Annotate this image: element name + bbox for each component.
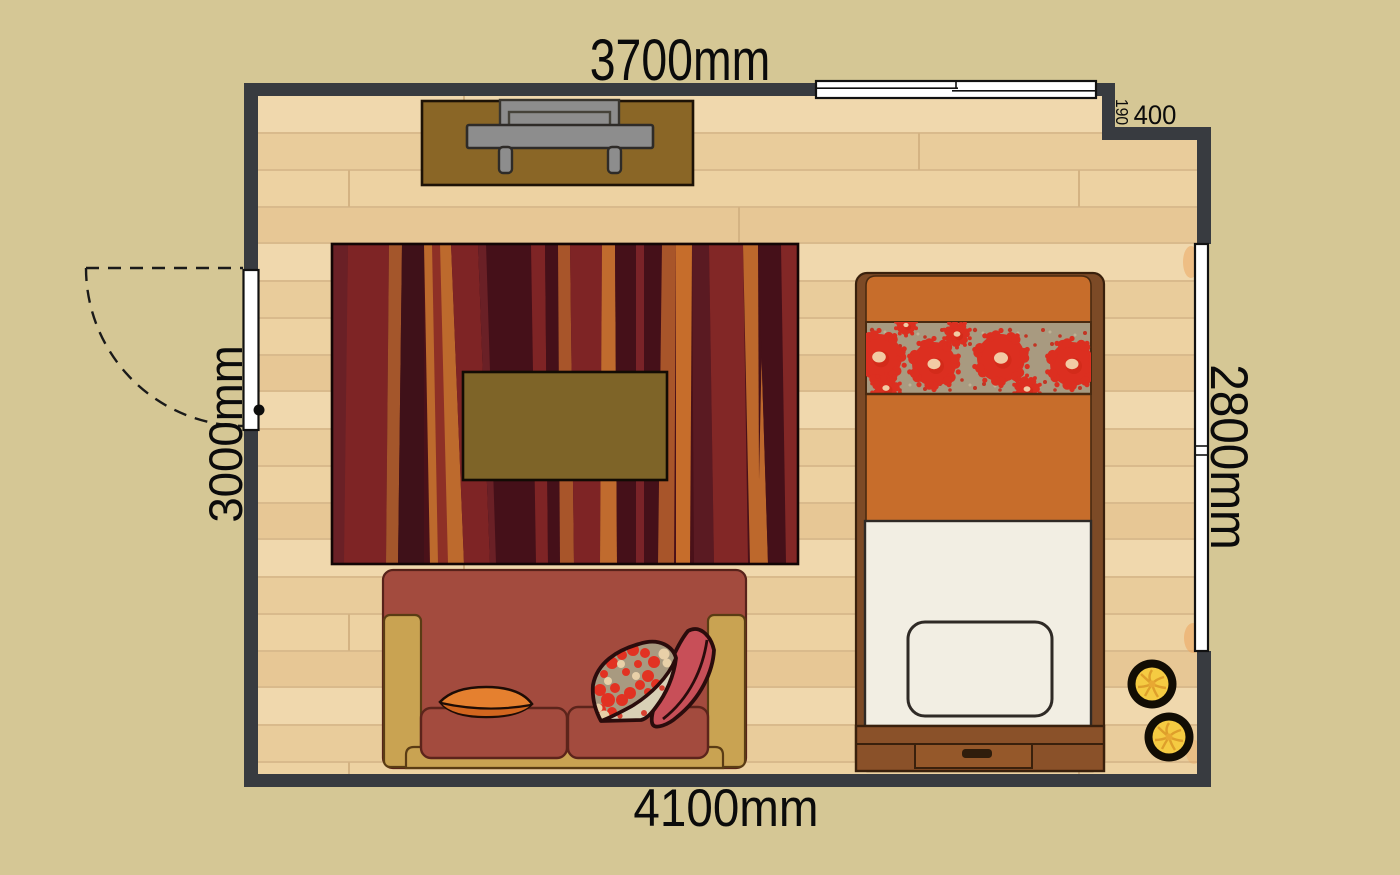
svg-text:2800mm: 2800mm [1199,364,1259,550]
svg-text:190: 190 [1112,99,1132,125]
svg-text:3700mm: 3700mm [590,28,771,93]
svg-text:3000mm: 3000mm [199,345,252,522]
svg-text:400: 400 [1134,99,1177,130]
svg-text:4100mm: 4100mm [633,778,818,838]
